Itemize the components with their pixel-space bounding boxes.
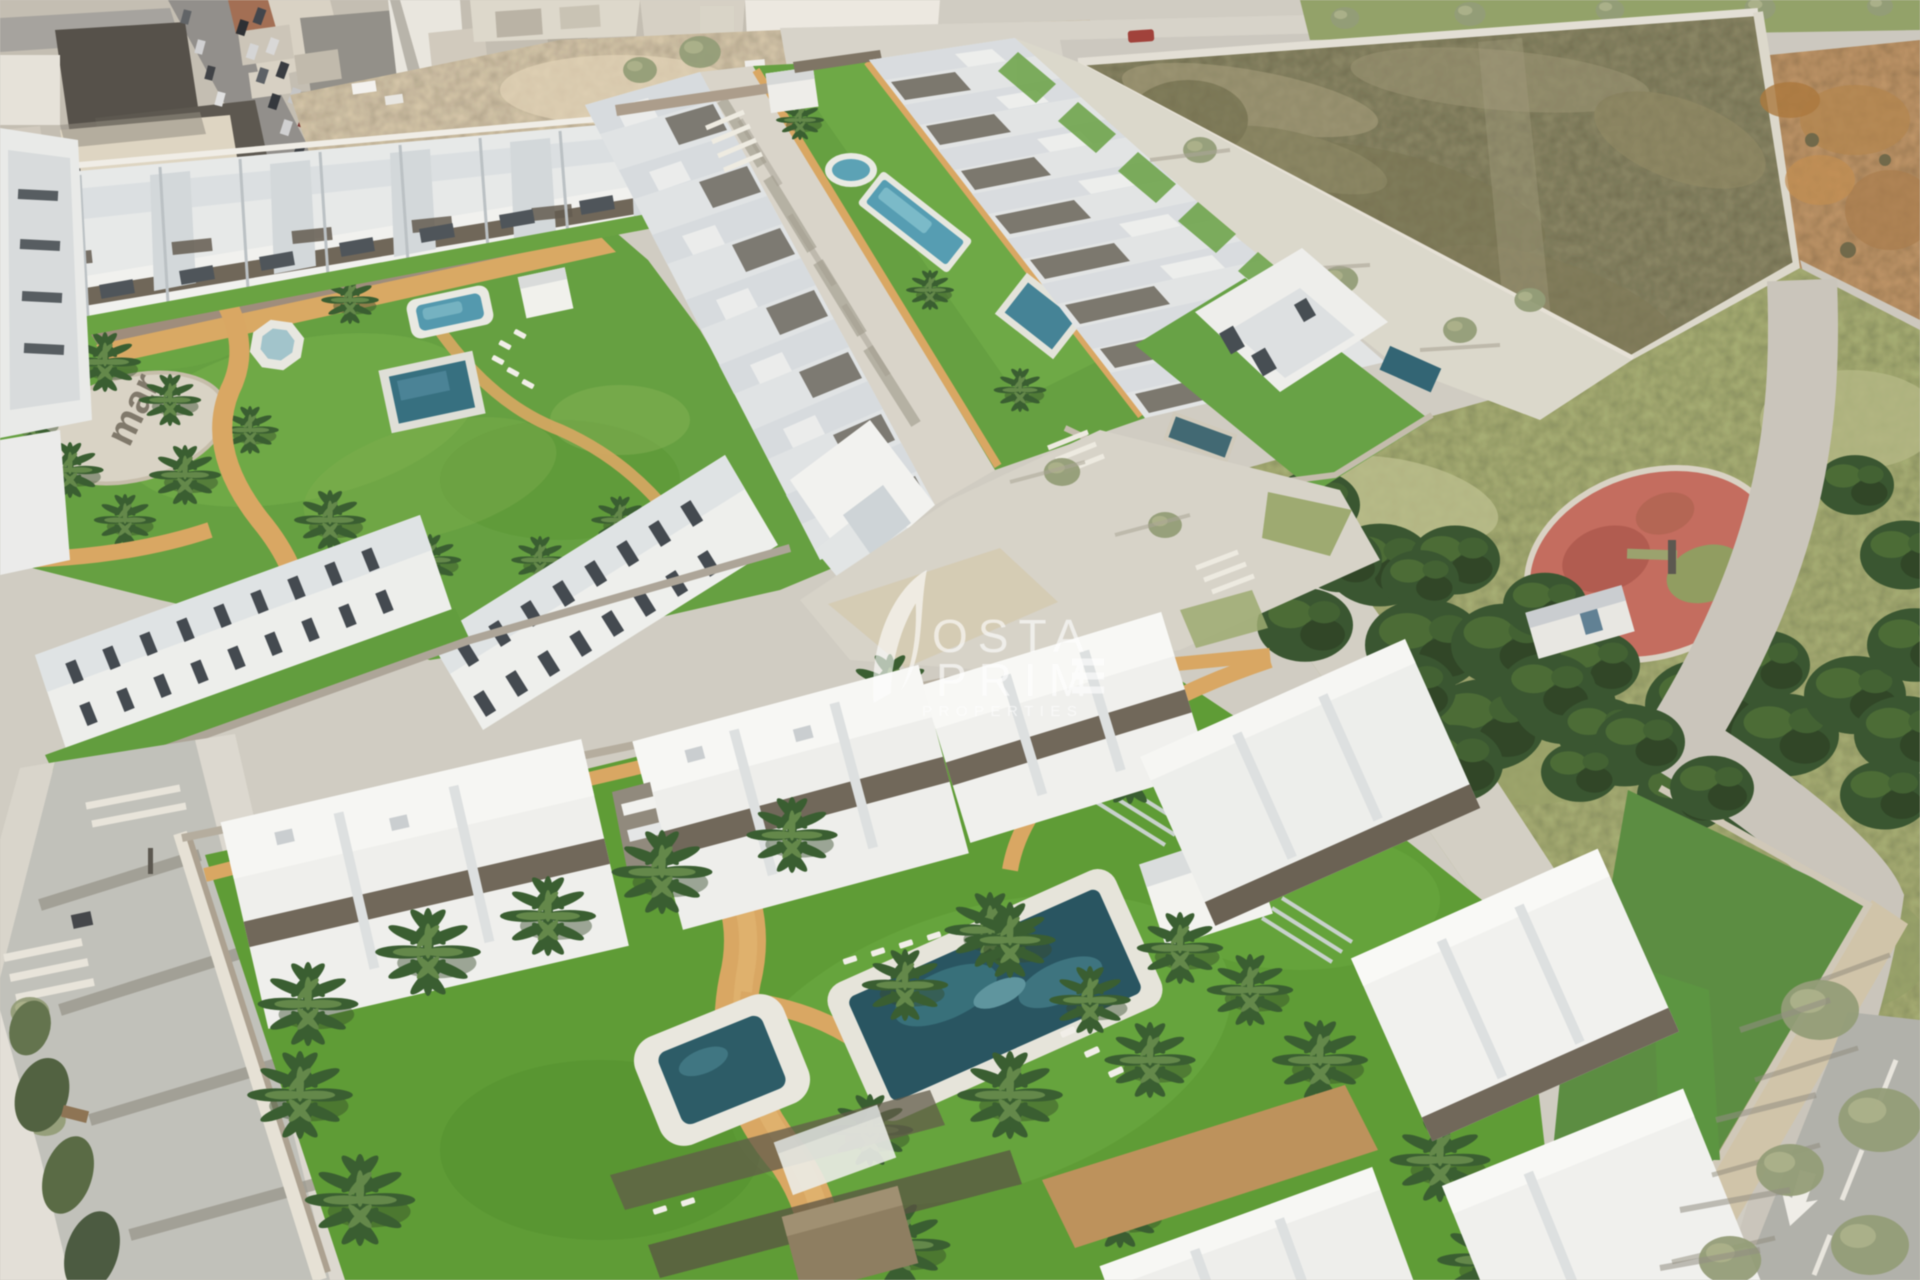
svg-text:PROPERTIES: PROPERTIES — [922, 703, 1083, 720]
